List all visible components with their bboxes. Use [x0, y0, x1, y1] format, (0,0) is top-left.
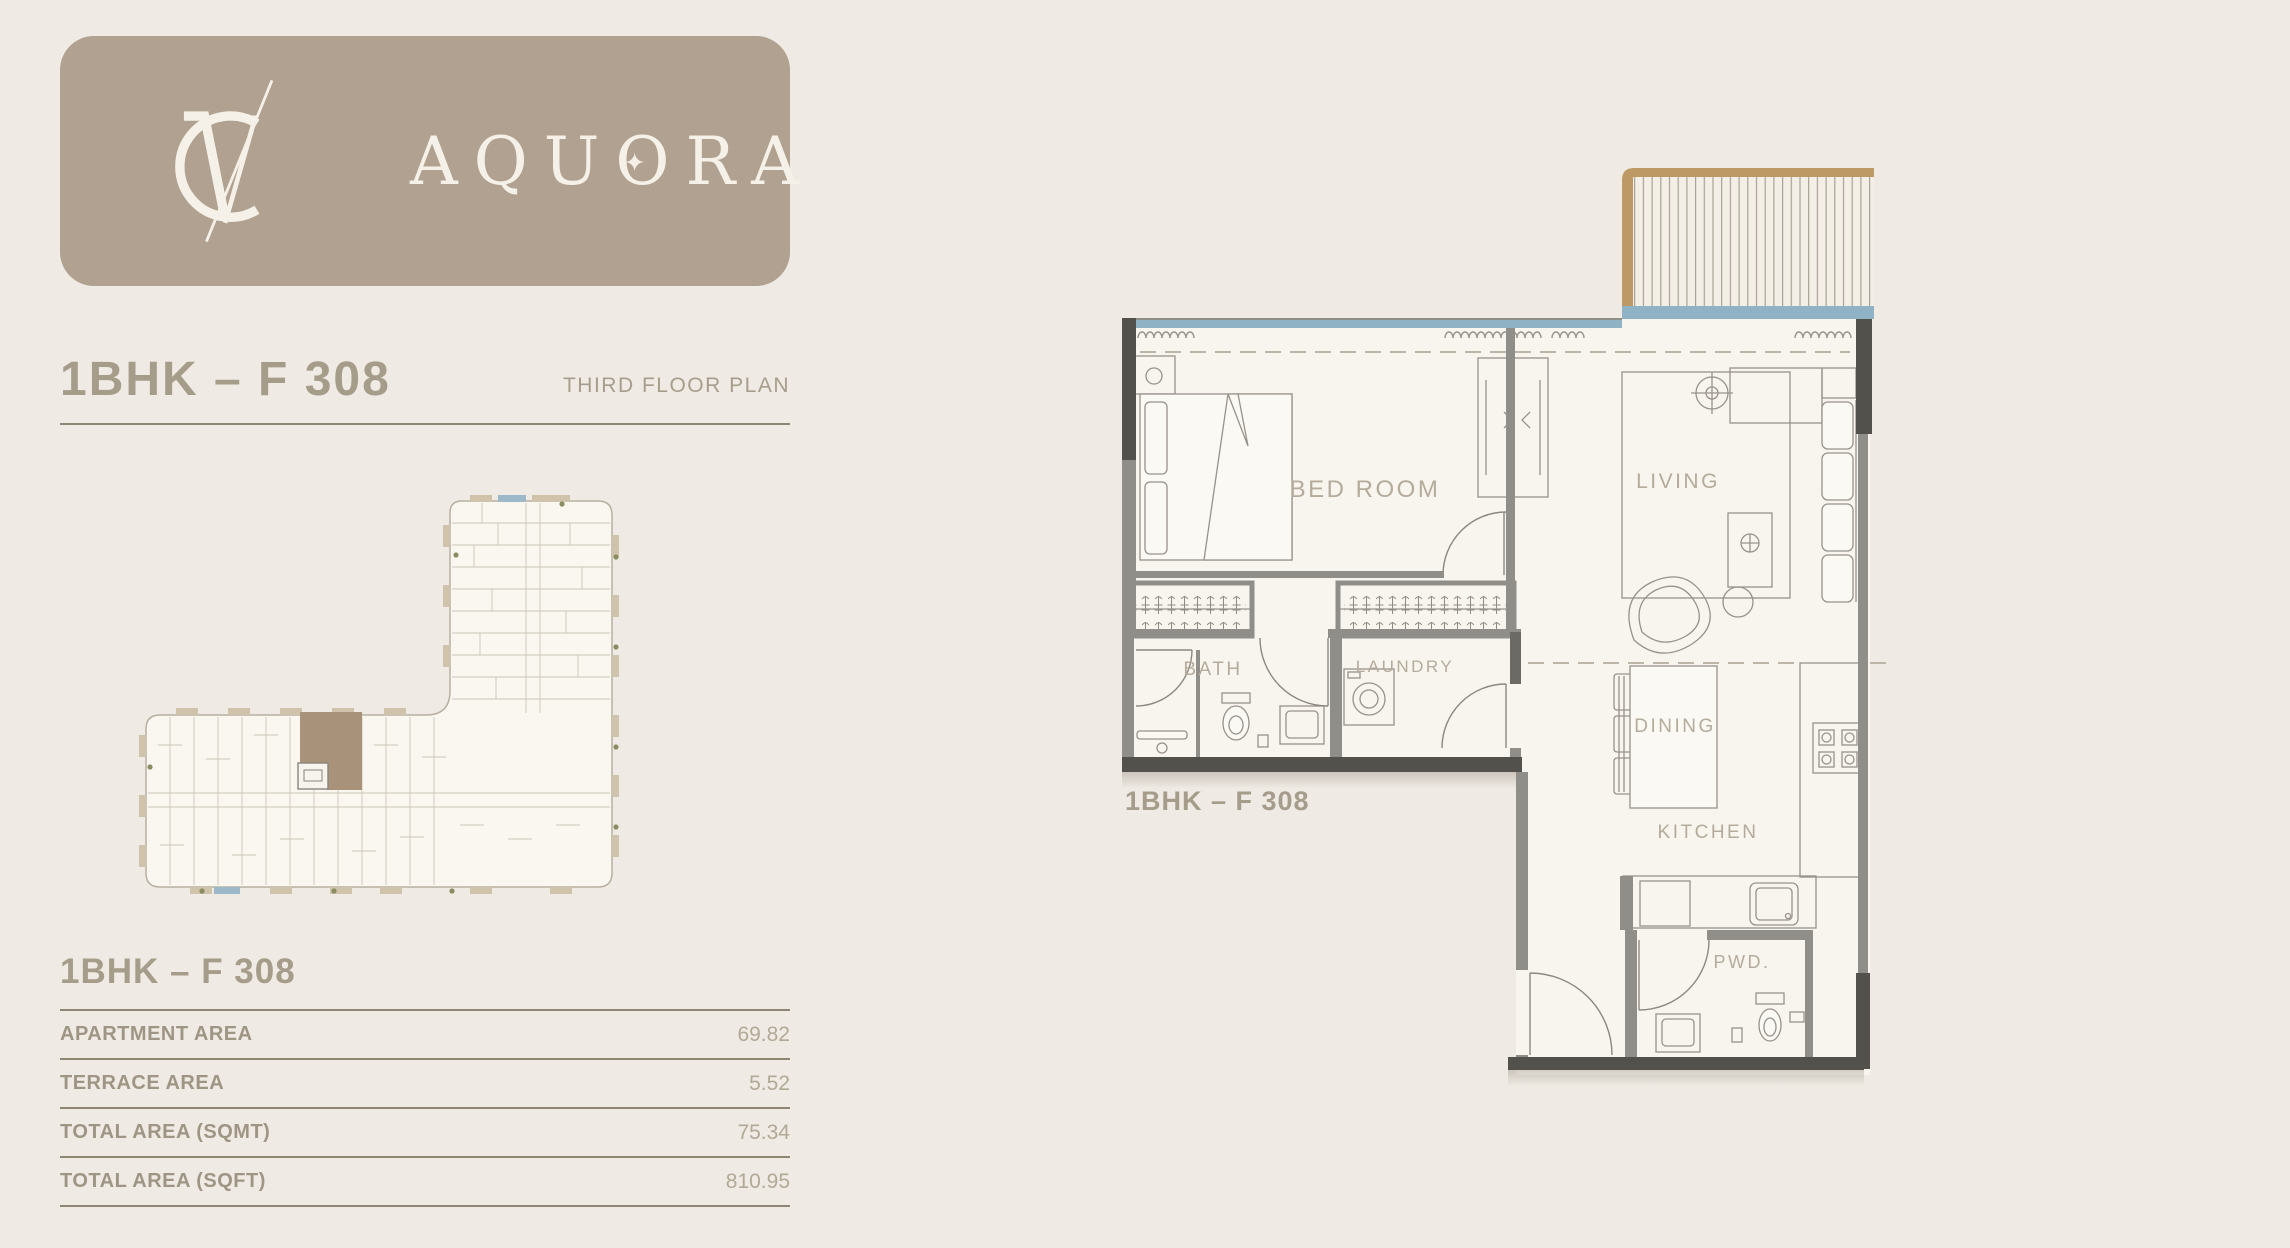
key-plan-core [298, 763, 328, 789]
table-row: TERRACE AREA 5.52 [60, 1058, 790, 1107]
row-label: TOTAL AREA (SQMT) [60, 1121, 270, 1144]
bath-label: BATH [1183, 659, 1242, 680]
brand-name-wrap: AQUORA ✦ [410, 123, 815, 200]
laundry-label: LAUNDRY [1356, 657, 1454, 676]
terrace [1622, 168, 1874, 306]
sparkle-icon: ✦ [624, 147, 646, 178]
brand-card: AQUORA ✦ [60, 36, 790, 286]
brand-name: AQUORA [410, 123, 815, 200]
brochure-page: AQUORA ✦ 1BHK – F 308 THIRD FLOOR PLAN [0, 0, 2290, 1248]
row-value: 810.95 [726, 1170, 790, 1194]
kitchen-label: KITCHEN [1658, 822, 1759, 843]
page-title: 1BHK – F 308 [60, 352, 391, 407]
dining-label: DINING [1634, 716, 1716, 737]
powder-label: PWD. [1714, 952, 1771, 972]
window-glass-band [1136, 320, 1622, 328]
building-key-plan [130, 495, 650, 895]
row-value: 75.34 [737, 1121, 790, 1145]
table-row: APARTMENT AREA 69.82 [60, 1009, 790, 1058]
plant-icon [1741, 534, 1759, 552]
row-value: 5.52 [749, 1072, 790, 1096]
row-label: TOTAL AREA (SQFT) [60, 1170, 266, 1193]
plan-unit-label: 1BHK – F 308 [1125, 786, 1310, 816]
header: 1BHK – F 308 THIRD FLOOR PLAN [60, 352, 790, 425]
table-row: TOTAL AREA (SQFT) 810.95 [60, 1156, 790, 1205]
row-value: 69.82 [737, 1023, 790, 1047]
vc-monogram-icon [152, 73, 302, 249]
area-table: 1BHK – F 308 APARTMENT AREA 69.82 TERRAC… [60, 952, 790, 1207]
header-rule [60, 423, 790, 425]
unit-floor-plan: BED ROOM LIVING BATH LAUNDRY DINING KITC… [1100, 150, 1900, 1110]
bedroom-label: BED ROOM [1290, 476, 1441, 503]
dining-furniture [1614, 666, 1717, 808]
area-table-title: 1BHK – F 308 [60, 952, 790, 992]
terrace-glass-band [1622, 306, 1874, 319]
page-subtitle: THIRD FLOOR PLAN [563, 374, 790, 407]
row-label: APARTMENT AREA [60, 1023, 253, 1046]
table-row: TOTAL AREA (SQMT) 75.34 [60, 1107, 790, 1156]
row-label: TERRACE AREA [60, 1072, 224, 1095]
living-label: LIVING [1636, 470, 1720, 493]
